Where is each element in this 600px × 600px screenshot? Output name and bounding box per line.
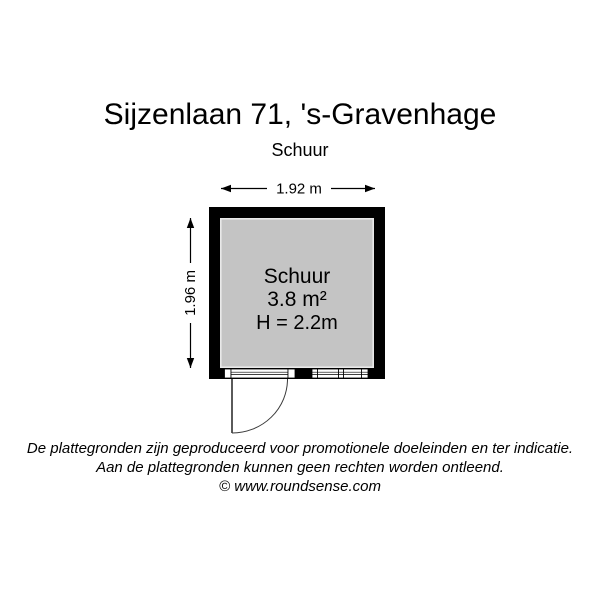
copyright-line: © www.roundsense.com — [0, 477, 600, 496]
disclaimer: De plattegronden zijn geproduceerd voor … — [0, 439, 600, 497]
arrow-down-icon — [187, 358, 194, 368]
door-opening — [225, 369, 296, 378]
height-dimension-label: 1.96 m — [182, 270, 199, 316]
arrow-right-icon — [365, 185, 375, 192]
top-dimension-line: 1.92 m — [221, 181, 375, 198]
door-frame-post — [288, 369, 295, 378]
width-dimension-label: 1.92 m — [276, 181, 322, 198]
arrow-left-icon — [221, 185, 231, 192]
left-dimension-line: 1.96 m — [182, 218, 199, 368]
disclaimer-line-2: Aan de plattegronden kunnen geen rechten… — [0, 458, 600, 477]
floorplan-page: Sijzenlaan 71, 's-Gravenhage Schuur 1.92… — [0, 0, 600, 600]
floorplan-diagram: 1.92 m 1.96 m — [0, 0, 600, 600]
room-name-label: Schuur — [264, 265, 331, 288]
window — [312, 369, 368, 378]
room-height-label: H = 2.2m — [256, 312, 338, 334]
door-frame-post — [225, 369, 232, 378]
disclaimer-line-1: De plattegronden zijn geproduceerd voor … — [0, 439, 600, 458]
room-area-label: 3.8 m² — [267, 288, 327, 311]
door-swing-arc — [232, 379, 288, 433]
arrow-up-icon — [187, 218, 194, 228]
